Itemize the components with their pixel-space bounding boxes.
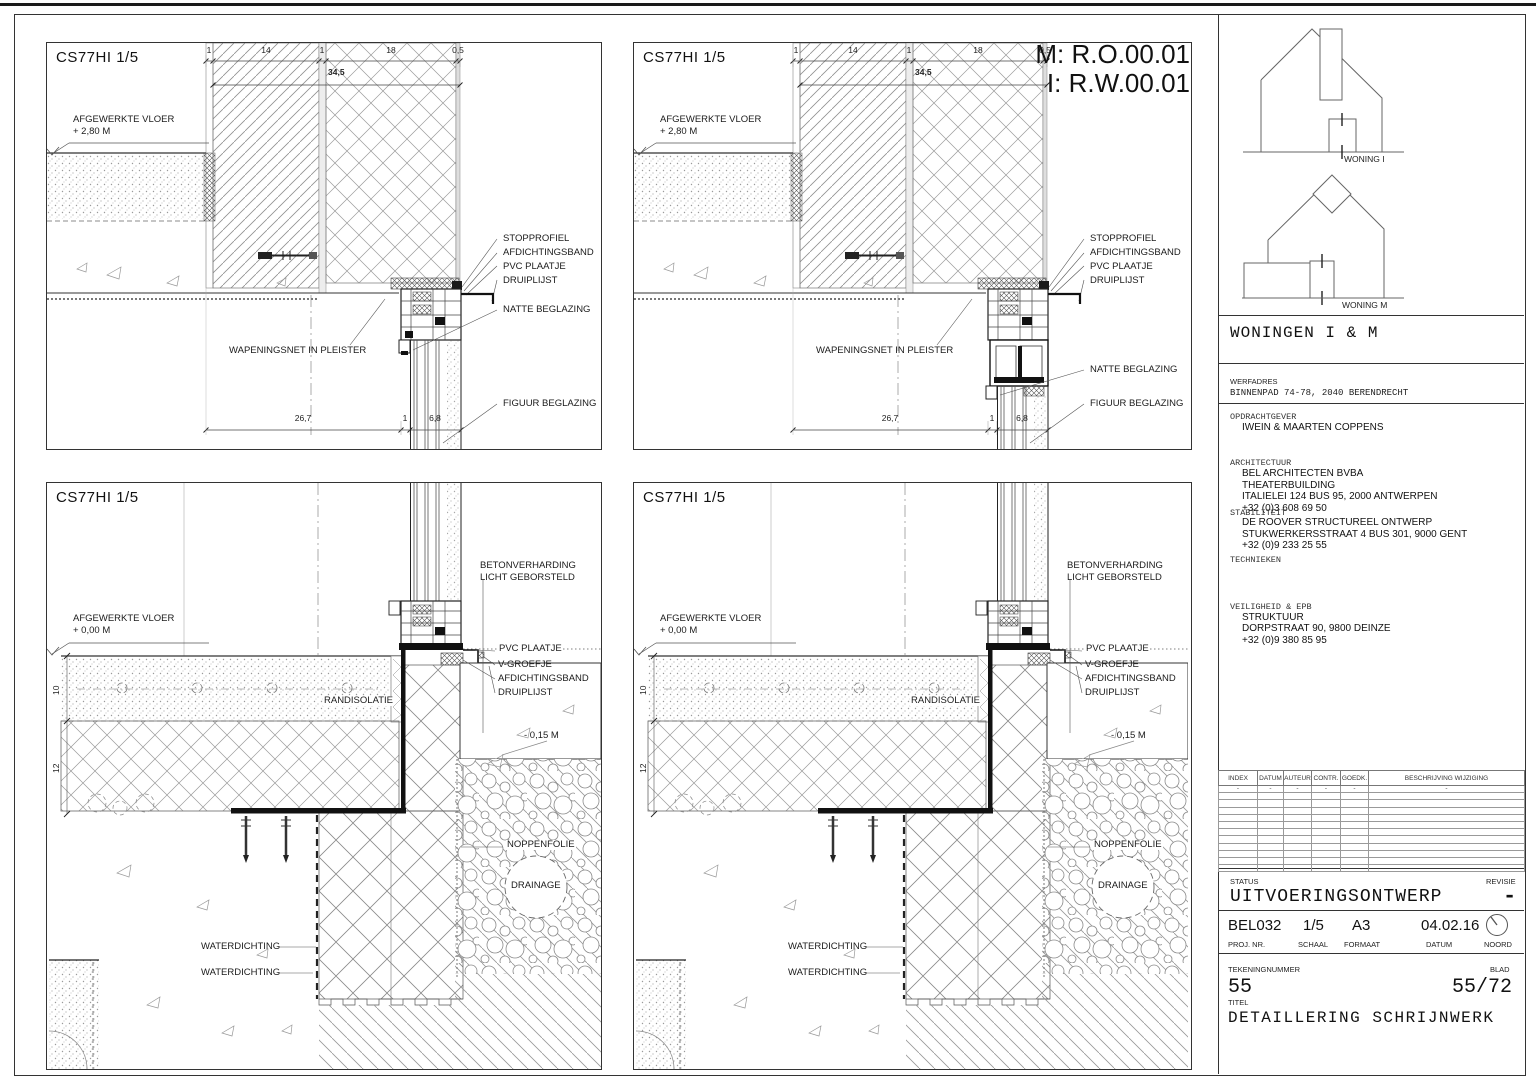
stabiliteit-line3: +32 (0)9 233 25 55 [1242, 540, 1327, 552]
label-pvc-plaatje: PVC PLAATJE [498, 644, 563, 654]
panel-code: CS77HI 1/5 [643, 489, 726, 506]
label-pvc-plaatje: PVC PLAATJE [1090, 262, 1153, 272]
revision-row [1219, 850, 1525, 857]
house-location-diagrams [1222, 20, 1522, 320]
titel-value: DETAILLERING SCHRIJNWERK [1228, 1009, 1494, 1027]
veiligheid-label: VEILIGHEID & EPB [1230, 602, 1312, 612]
label-randisolatie: RANDISOLATIE [323, 696, 394, 706]
drawing-sheet: CS77HI 1/5 AFGEWERKTE VLOER + 2,80 M 1 1… [0, 0, 1536, 1086]
col-beschrijving: BESCHRIJVING WIJZIGING [1369, 771, 1525, 786]
label-v-groefje: V-GROEFJE [1085, 660, 1139, 670]
label-level-015: - 0,15 M [1111, 731, 1146, 741]
label-randisolatie: RANDISOLATIE [910, 696, 981, 706]
stabiliteit-line1: DE ROOVER STRUCTUREEL ONTWERP [1242, 517, 1432, 529]
label-wapeningsnet: WAPENINGSNET IN PLEISTER [816, 346, 953, 356]
revision-row [1219, 807, 1525, 814]
label-betonverharding: BETONVERHARDING [1067, 561, 1163, 571]
dim-18: 18 [386, 45, 395, 55]
label-stopprofiel: STOPPROFIEL [1090, 234, 1156, 244]
revision-row [1219, 800, 1525, 807]
revision-row [1219, 814, 1525, 821]
detail-reference-codes: M: R.O.00.01 I: R.W.00.01 [1035, 40, 1190, 97]
label-pvc-plaatje: PVC PLAATJE [1085, 644, 1150, 654]
label-licht-geborsteld: LICHT GEBORSTELD [480, 573, 575, 583]
col-contr: CONTR. [1312, 771, 1341, 786]
dim-1: 1 [794, 45, 799, 55]
project-title: WONINGEN I & M [1230, 324, 1378, 342]
label-figuur-beglazing: FIGUUR BEGLAZING [1090, 399, 1183, 409]
stabiliteit-line2: STUKWERKERSSTRAAT 4 BUS 301, 9000 GENT [1242, 529, 1467, 541]
formaat-value: A3 [1352, 917, 1370, 934]
panel-code: CS77HI 1/5 [643, 49, 726, 66]
formaat-label: FORMAAT [1344, 940, 1380, 949]
architectuur-line2: THEATERBUILDING [1242, 480, 1335, 492]
datum-value: 04.02.16 [1421, 917, 1479, 934]
technieken-label: TECHNIEKEN [1230, 555, 1281, 565]
detail-drawing-head-right [634, 43, 1188, 449]
veiligheid-line1: STRUKTUUR [1242, 612, 1304, 624]
label-v-groefje: V-GROEFJE [498, 660, 552, 670]
label-noppenfolie: NOPPENFOLIE [1093, 840, 1163, 850]
revision-row [1219, 857, 1525, 864]
werfadres-label: WERFADRES [1230, 377, 1278, 386]
architectuur-line3: ITALIELEI 124 BUS 95, 2000 ANTWERPEN [1242, 491, 1437, 503]
veiligheid-line2: DORPSTRAAT 90, 9800 DEINZE [1242, 623, 1391, 635]
label-woning-m: WONING M [1342, 300, 1387, 310]
titleblock-line [1218, 910, 1524, 911]
revision-row [1219, 843, 1525, 850]
label-waterdichting-2: WATERDICHTING [788, 968, 867, 978]
detail-panel-top-right: CS77HI 1/5 AFGEWERKTE VLOER + 2,80 M 1 1… [633, 42, 1192, 450]
dim-1b: 1 [907, 45, 912, 55]
label-druiplijst: DRUIPLIJST [503, 276, 557, 286]
label-afdichtingsband: AFDICHTINGSBAND [503, 248, 594, 258]
titleblock-line [1218, 363, 1524, 364]
page-top-edge [0, 3, 1536, 6]
label-druiplijst: DRUIPLIJST [498, 688, 552, 698]
dim-68: 6,8 [429, 413, 441, 423]
detail-drawing-head-left [47, 43, 601, 449]
dim-14: 14 [848, 45, 857, 55]
label-afgewerkte-vloer: AFGEWERKTE VLOER [73, 614, 174, 624]
dim-267: 26,7 [882, 413, 899, 423]
veiligheid-line3: +32 (0)9 380 85 95 [1242, 635, 1327, 647]
detail-panel-bottom-left: CS77HI 1/5 AFGEWERKTE VLOER + 0,00 M BET… [46, 482, 602, 1070]
status-value: UITVOERINGSONTWERP [1230, 887, 1442, 907]
rev-cell: - [1369, 786, 1525, 793]
dim-12: 12 [51, 764, 61, 773]
ref-code-m: M: R.O.00.01 [1035, 40, 1190, 69]
label-waterdichting-1: WATERDICHTING [788, 942, 867, 952]
label-level-000: + 0,00 M [660, 626, 697, 636]
opdrachtgever-value: IWEIN & MAARTEN COPPENS [1242, 422, 1384, 434]
rev-cell: - [1258, 786, 1284, 793]
proj-nr-value: BEL032 [1228, 917, 1281, 934]
label-druiplijst: DRUIPLIJST [1090, 276, 1144, 286]
opdrachtgever-label: OPDRACHTGEVER [1230, 412, 1296, 422]
dim-14: 14 [261, 45, 270, 55]
label-afdichtingsband: AFDICHTINGSBAND [1085, 674, 1176, 684]
werfadres-value: BINNENPAD 74-78, 2040 BERENDRECHT [1230, 388, 1408, 398]
label-afdichtingsband: AFDICHTINGSBAND [498, 674, 589, 684]
schaal-value: 1/5 [1303, 917, 1324, 934]
label-level-280: + 2,80 M [660, 127, 697, 137]
north-compass-icon [1484, 912, 1510, 938]
revision-row: - - - - - - [1219, 786, 1525, 793]
revision-row [1219, 836, 1525, 843]
titel-label: TITEL [1228, 998, 1248, 1007]
titleblock-divider [1218, 14, 1219, 1074]
status-label: STATUS [1230, 877, 1258, 886]
label-afdichtingsband: AFDICHTINGSBAND [1090, 248, 1181, 258]
dim-18: 18 [973, 45, 982, 55]
detail-panel-bottom-right: CS77HI 1/5 AFGEWERKTE VLOER + 0,00 M BET… [633, 482, 1192, 1070]
dim-total-345: 34,5 [328, 67, 345, 77]
blad-value: 55/72 [1452, 976, 1512, 999]
label-licht-geborsteld: LICHT GEBORSTELD [1067, 573, 1162, 583]
panel-code: CS77HI 1/5 [56, 489, 139, 506]
dim-1: 1 [207, 45, 212, 55]
schaal-label: SCHAAL [1298, 940, 1328, 949]
panel-code: CS77HI 1/5 [56, 49, 139, 66]
dim-10: 10 [51, 686, 61, 695]
label-drainage: DRAINAGE [1098, 881, 1148, 891]
col-index: INDEX [1219, 771, 1258, 786]
rev-cell: - [1341, 786, 1369, 793]
dim-b1: 1 [990, 413, 995, 423]
noord-label: NOORD [1484, 940, 1512, 949]
label-stopprofiel: STOPPROFIEL [503, 234, 569, 244]
label-afgewerkte-vloer: AFGEWERKTE VLOER [73, 115, 174, 125]
label-afgewerkte-vloer: AFGEWERKTE VLOER [660, 115, 761, 125]
dim-267: 26,7 [295, 413, 312, 423]
rev-cell: - [1219, 786, 1258, 793]
tekeningnummer-value: 55 [1228, 976, 1252, 999]
rev-cell: - [1284, 786, 1312, 793]
dim-1b: 1 [320, 45, 325, 55]
dim-05: 0,5 [452, 45, 464, 55]
ref-code-i: I: R.W.00.01 [1035, 69, 1190, 98]
label-betonverharding: BETONVERHARDING [480, 561, 576, 571]
label-noppenfolie: NOPPENFOLIE [506, 840, 576, 850]
revision-row [1219, 865, 1525, 872]
label-drainage: DRAINAGE [511, 881, 561, 891]
dim-10: 10 [638, 686, 648, 695]
label-wapeningsnet: WAPENINGSNET IN PLEISTER [229, 346, 366, 356]
dim-12: 12 [638, 764, 648, 773]
col-datum: DATUM [1258, 771, 1284, 786]
label-waterdichting-1: WATERDICHTING [201, 942, 280, 952]
architectuur-line1: BEL ARCHITECTEN BVBA [1242, 468, 1363, 480]
label-level-280: + 2,80 M [73, 127, 110, 137]
revision-header-row: INDEX DATUM AUTEUR CONTR. GOEDK. BESCHRI… [1219, 771, 1525, 786]
col-goedk: GOEDK. [1341, 771, 1369, 786]
label-waterdichting-2: WATERDICHTING [201, 968, 280, 978]
revision-table: INDEX DATUM AUTEUR CONTR. GOEDK. BESCHRI… [1218, 770, 1525, 872]
label-pvc-plaatje: PVC PLAATJE [503, 262, 566, 272]
label-level-000: + 0,00 M [73, 626, 110, 636]
datum-label: DATUM [1426, 940, 1452, 949]
tekeningnummer-label: TEKENINGNUMMER [1228, 965, 1300, 974]
proj-nr-label: PROJ. NR. [1228, 940, 1265, 949]
titleblock-line [1218, 953, 1524, 954]
revision-row [1219, 829, 1525, 836]
titleblock-line [1218, 403, 1524, 404]
dim-total-345: 34,5 [915, 67, 932, 77]
rev-cell: - [1312, 786, 1341, 793]
architectuur-label: ARCHITECTUUR [1230, 458, 1291, 468]
col-auteur: AUTEUR [1284, 771, 1312, 786]
label-woning-i: WONING I [1344, 154, 1385, 164]
revision-row [1219, 821, 1525, 828]
label-level-015: - 0,15 M [524, 731, 559, 741]
label-natte-beglazing: NATTE BEGLAZING [1090, 365, 1177, 375]
revision-row [1219, 793, 1525, 800]
label-figuur-beglazing: FIGUUR BEGLAZING [503, 399, 596, 409]
revisie-value: - [1503, 884, 1516, 909]
label-natte-beglazing: NATTE BEGLAZING [503, 305, 590, 315]
dim-68: 6,8 [1016, 413, 1028, 423]
label-afgewerkte-vloer: AFGEWERKTE VLOER [660, 614, 761, 624]
dim-b1: 1 [403, 413, 408, 423]
blad-label: BLAD [1490, 965, 1510, 974]
label-druiplijst: DRUIPLIJST [1085, 688, 1139, 698]
detail-panel-top-left: CS77HI 1/5 AFGEWERKTE VLOER + 2,80 M 1 1… [46, 42, 602, 450]
